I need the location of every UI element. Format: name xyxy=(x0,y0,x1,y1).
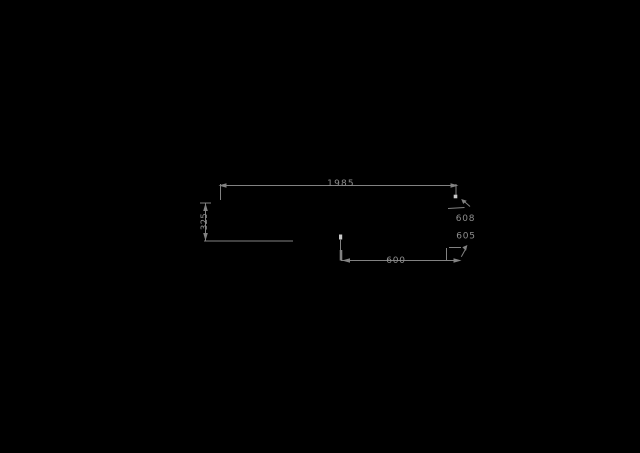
dimension-arrowhead xyxy=(219,183,227,188)
dimension-value: 608 xyxy=(456,214,476,224)
dimension-value: 1985 xyxy=(327,179,355,189)
top-width-dimension[interactable]: 1985 xyxy=(219,179,459,200)
leader-hook-line xyxy=(448,208,465,209)
dimension-arrowhead xyxy=(203,203,208,211)
dimension-value: 325 xyxy=(200,213,210,230)
dimension-arrowhead xyxy=(342,258,350,263)
drawing-canvas: 1985 325 608 605 xyxy=(0,0,640,453)
leader-line xyxy=(461,250,465,257)
grip-handle[interactable] xyxy=(454,195,458,199)
right-lower-leader-dimension[interactable]: 605 xyxy=(449,232,476,257)
right-upper-leader-dimension[interactable]: 608 xyxy=(448,199,475,224)
dimension-arrowhead xyxy=(451,183,459,188)
grip-handle[interactable] xyxy=(339,235,342,240)
dimension-value: 605 xyxy=(456,232,476,242)
dimension-arrowhead xyxy=(454,258,462,263)
cad-viewport[interactable]: 1985 325 608 605 xyxy=(0,0,640,453)
dimension-arrowhead xyxy=(203,233,208,241)
left-height-dimension[interactable]: 325 xyxy=(200,203,293,241)
bottom-width-dimension[interactable]: 600 xyxy=(339,235,462,267)
dimension-value: 600 xyxy=(386,256,406,266)
